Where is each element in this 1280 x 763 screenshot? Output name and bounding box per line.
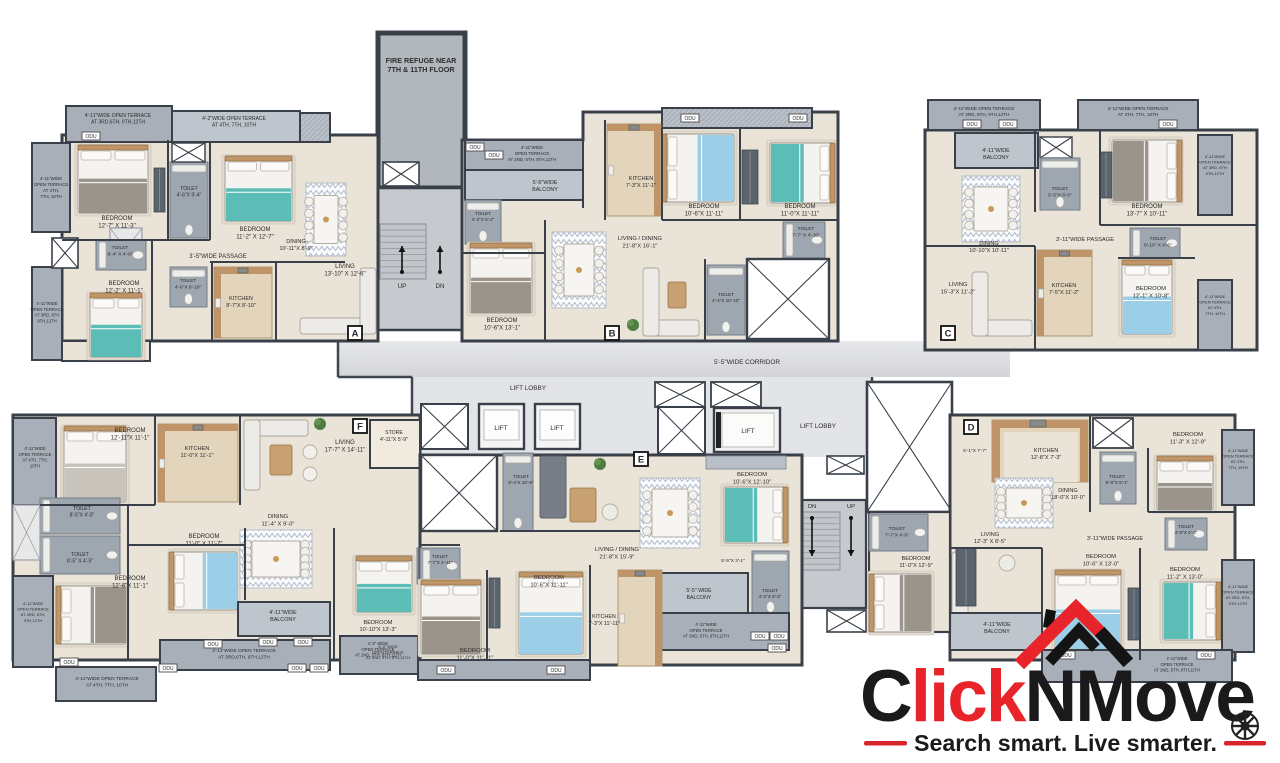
svg-text:A: A bbox=[352, 328, 359, 339]
svg-text:5'-5"WIDEBALCONY: 5'-5"WIDEBALCONY bbox=[532, 180, 558, 193]
svg-text:ODU: ODU bbox=[262, 640, 274, 646]
svg-text:LIFT LOBBY: LIFT LOBBY bbox=[800, 423, 837, 430]
svg-text:4'-11"WIDEBALCONY: 4'-11"WIDEBALCONY bbox=[982, 148, 1010, 161]
svg-text:BEDROOM12'-1" X 10'-8": BEDROOM12'-1" X 10'-8" bbox=[1133, 286, 1170, 299]
svg-text:ODU: ODU bbox=[85, 134, 97, 140]
svg-text:UP: UP bbox=[398, 283, 407, 290]
svg-text:LIFT: LIFT bbox=[550, 425, 563, 432]
svg-text:DN: DN bbox=[808, 504, 816, 510]
svg-text:BEDROOM12'-11"X 11'-1": BEDROOM12'-11"X 11'-1" bbox=[111, 428, 150, 442]
svg-text:4'-11"WIDE OPEN TERRACEAT 3RD,: 4'-11"WIDE OPEN TERRACEAT 3RD,6TH, 9TH,1… bbox=[85, 113, 152, 126]
svg-text:BEDROOM11'-2" X 13'-0": BEDROOM11'-2" X 13'-0" bbox=[1167, 567, 1203, 580]
svg-text:5'-1"X 7'-7": 5'-1"X 7'-7" bbox=[963, 448, 987, 454]
svg-text:ODU: ODU bbox=[773, 634, 785, 640]
svg-text:KITCHEN7'-5"X 11'-2": KITCHEN7'-5"X 11'-2" bbox=[1049, 283, 1079, 296]
svg-text:KITCHEN12'-8"X 7'-3": KITCHEN12'-8"X 7'-3" bbox=[1031, 448, 1062, 461]
svg-text:BEDROOM11'-0"X 12'-9": BEDROOM11'-0"X 12'-9" bbox=[899, 556, 932, 569]
svg-text:ODU: ODU bbox=[469, 145, 481, 151]
svg-text:ODU: ODU bbox=[550, 668, 562, 674]
svg-text:BEDROOM12'-6"X 11'-1": BEDROOM12'-6"X 11'-1" bbox=[112, 576, 148, 590]
svg-text:ODU: ODU bbox=[684, 116, 696, 122]
svg-text:BEDROOM11'-2" X 12'-7": BEDROOM11'-2" X 12'-7" bbox=[236, 227, 273, 241]
svg-text:ODU: ODU bbox=[313, 666, 325, 672]
svg-text:4'-11"WIDEBALCONY: 4'-11"WIDEBALCONY bbox=[269, 610, 297, 623]
svg-text:DN: DN bbox=[436, 283, 445, 290]
svg-text:BEDROOM10'-6"X 11'-11": BEDROOM10'-6"X 11'-11" bbox=[685, 204, 724, 218]
svg-text:BEDROOM10'-6"X 11'-11": BEDROOM10'-6"X 11'-11" bbox=[530, 575, 567, 588]
svg-text:F: F bbox=[357, 421, 363, 432]
svg-text:E: E bbox=[638, 454, 644, 465]
svg-text:ClickNMove: ClickNMove bbox=[860, 656, 1254, 737]
svg-text:BEDROOM12'-7" X 11'-3": BEDROOM12'-7" X 11'-3" bbox=[98, 216, 135, 230]
svg-text:ODU: ODU bbox=[771, 646, 783, 652]
svg-text:ODU: ODU bbox=[792, 116, 804, 122]
svg-text:ODU: ODU bbox=[207, 642, 219, 648]
svg-text:3'-5"WIDE PASSAGE: 3'-5"WIDE PASSAGE bbox=[189, 254, 247, 260]
svg-text:ODU: ODU bbox=[1002, 122, 1014, 128]
svg-text:LIFT LOBBY: LIFT LOBBY bbox=[510, 385, 547, 392]
svg-text:5'-5"WIDE CORRIDOR: 5'-5"WIDE CORRIDOR bbox=[714, 359, 780, 366]
svg-text:BEDROOM11'-0"X 11'-11": BEDROOM11'-0"X 11'-11" bbox=[781, 204, 819, 218]
svg-text:BEDROOM11'-3" X 12'-9": BEDROOM11'-3" X 12'-9" bbox=[1170, 432, 1206, 445]
svg-text:LIVING / DINING21'-8"X 15'-9": LIVING / DINING21'-8"X 15'-9" bbox=[595, 547, 640, 560]
svg-text:BEDROOM12'-2" X 11'-1": BEDROOM12'-2" X 11'-1" bbox=[105, 281, 142, 295]
svg-text:ODU: ODU bbox=[440, 668, 452, 674]
svg-text:ODU: ODU bbox=[966, 122, 978, 128]
svg-text:4'-11"WIDE OPEN TERRACEAT 3RD,: 4'-11"WIDE OPEN TERRACEAT 3RD, 6TH, 9TH,… bbox=[954, 106, 1015, 117]
svg-text:KITCHEN7'-3"X 11'-1": KITCHEN7'-3"X 11'-1" bbox=[626, 176, 656, 189]
svg-text:BEDROOM13'-7" X 10'-11": BEDROOM13'-7" X 10'-11" bbox=[1127, 204, 1168, 218]
svg-text:ODU: ODU bbox=[63, 660, 75, 666]
svg-text:3'-11"WIDE PASSAGE: 3'-11"WIDE PASSAGE bbox=[1087, 536, 1144, 542]
svg-text:5'-5"X 3'-1": 5'-5"X 3'-1" bbox=[721, 558, 745, 564]
svg-text:ODU: ODU bbox=[1162, 122, 1174, 128]
svg-text:LIFT: LIFT bbox=[741, 428, 754, 435]
svg-text:KITCHEN7'-3"X 11'-11": KITCHEN7'-3"X 11'-11" bbox=[588, 614, 620, 627]
svg-text:B: B bbox=[609, 328, 616, 339]
svg-text:Search smart. Live smarter.: Search smart. Live smarter. bbox=[914, 730, 1217, 756]
svg-text:BEDROOM10'-6"X 13'-1": BEDROOM10'-6"X 13'-1" bbox=[484, 318, 520, 332]
svg-text:BEDROOM10'-6"X 12'-10": BEDROOM10'-6"X 12'-10" bbox=[733, 472, 771, 485]
svg-text:4'-11"WIDEBALCONY: 4'-11"WIDEBALCONY bbox=[983, 622, 1011, 635]
svg-text:5'-5" WIDEBALCONY: 5'-5" WIDEBALCONY bbox=[686, 588, 712, 601]
svg-text:C: C bbox=[945, 328, 952, 339]
svg-text:ODU: ODU bbox=[754, 634, 766, 640]
svg-text:UP: UP bbox=[847, 504, 855, 510]
svg-text:ODU: ODU bbox=[162, 666, 174, 672]
svg-text:ODU: ODU bbox=[291, 666, 303, 672]
svg-text:KITCHEN8'-7"X 8'-10": KITCHEN8'-7"X 8'-10" bbox=[226, 296, 256, 309]
svg-text:3'-11"WIDE PASSAGE: 3'-11"WIDE PASSAGE bbox=[1056, 237, 1114, 243]
svg-text:D: D bbox=[968, 422, 975, 433]
svg-text:FIRE REFUGE NEAR7TH & 11TH FLO: FIRE REFUGE NEAR7TH & 11TH FLOOR bbox=[386, 56, 457, 74]
svg-text:BEDROOM10'-6" X 13'-0": BEDROOM10'-6" X 13'-0" bbox=[1083, 554, 1120, 567]
svg-text:ODU: ODU bbox=[297, 640, 309, 646]
svg-text:BEDROOM10'-10"X 13'-3": BEDROOM10'-10"X 13'-3" bbox=[360, 620, 397, 633]
svg-text:ODU: ODU bbox=[488, 153, 500, 159]
svg-text:LIFT: LIFT bbox=[494, 425, 507, 432]
svg-text:LIVING / DINING21'-8"X 16'-1": LIVING / DINING21'-8"X 16'-1" bbox=[618, 236, 663, 249]
svg-text:KITCHEN11'-0"X 11'-1": KITCHEN11'-0"X 11'-1" bbox=[181, 446, 214, 459]
